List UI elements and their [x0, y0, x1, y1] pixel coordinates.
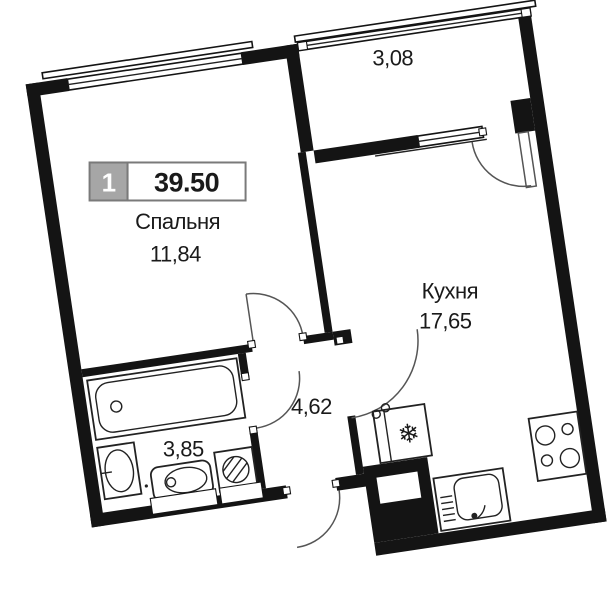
wall-bedroom-balcony — [285, 44, 314, 153]
hallway-area-label: 4,62 — [291, 394, 332, 419]
bathroom-door-jamb-top — [241, 373, 249, 381]
bedroom-door-jamb-right — [299, 333, 307, 341]
balcony-glazing-glass-line — [298, 12, 530, 47]
stove-icon — [529, 411, 587, 481]
wall-left-exterior — [26, 82, 105, 527]
balcony-glazing-cap-left — [297, 41, 307, 50]
bedroom-area-label: 11,84 — [150, 242, 201, 267]
fridge-snowflake-glyph: ❄ — [396, 417, 421, 450]
wall-top-left-pier — [26, 78, 69, 97]
floor-plan-rotated-container: ❄ — [14, 0, 615, 600]
entrance-door-jamb-right — [332, 479, 340, 487]
shaft-vent-slot — [376, 471, 423, 505]
walls — [26, 9, 607, 597]
bedroom-door-arc — [246, 287, 303, 344]
unit-badge: 1 39.50 — [90, 162, 246, 200]
bathroom-area-label: 3,85 — [163, 437, 204, 462]
kitchen-name-label: Кухня — [422, 278, 478, 303]
bathroom-door-jamb-bottom — [249, 426, 257, 434]
floor-plan: ❄ — [14, 0, 615, 600]
bedroom-door-leaf — [246, 294, 253, 343]
wall-bedroom-south-right — [303, 332, 334, 344]
balcony-door-leaf — [518, 132, 536, 188]
bathroom-sink-icon — [97, 442, 141, 499]
bedroom-door-jamb-left — [248, 340, 256, 348]
wall-hallway-east — [347, 415, 364, 475]
toilet-wall-dot — [145, 484, 149, 488]
wall-bottom-center — [335, 473, 369, 491]
kitchen-area-label: 17,65 — [419, 308, 472, 333]
entrance-door-arc — [290, 491, 347, 548]
total-area: 39.50 — [154, 167, 219, 197]
unit-number: 1 — [102, 167, 116, 197]
bedroom-name-label: Спальня — [135, 209, 220, 234]
floor-plan-canvas: ❄ — [0, 0, 615, 600]
wall-bedroom-kitchen — [298, 152, 333, 333]
kitchen-door-jamb — [336, 336, 344, 344]
wall-balcony-kitchen — [314, 135, 420, 163]
balcony-door-jamb — [479, 128, 487, 136]
balcony-area-label: 3,08 — [372, 45, 413, 70]
balcony-glazing-cap-right — [521, 8, 531, 17]
entrance-door-jamb-left — [283, 487, 291, 495]
